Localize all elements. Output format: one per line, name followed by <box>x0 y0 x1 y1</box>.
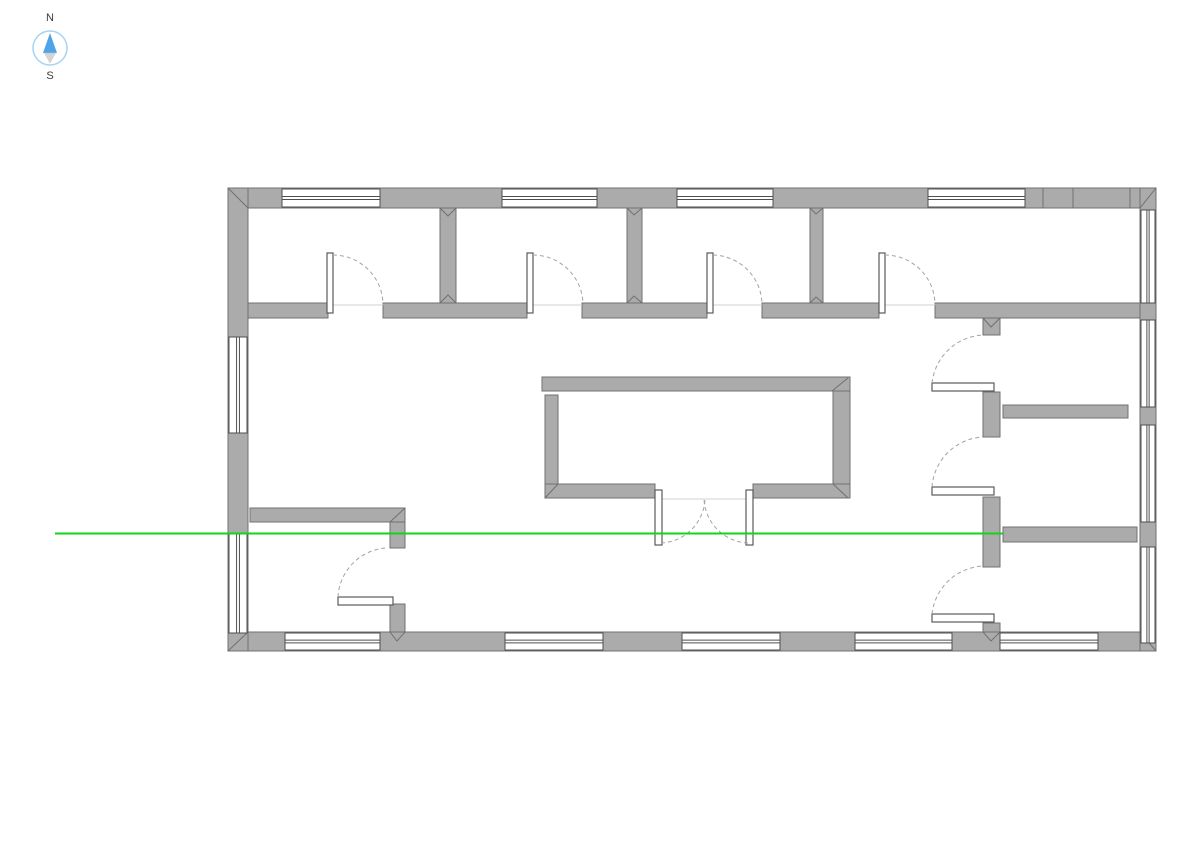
window-frame[interactable] <box>928 189 1025 207</box>
compass-north-needle-icon <box>43 33 57 53</box>
door-swing-arc <box>533 255 583 305</box>
compass-south-label: S <box>46 70 53 82</box>
door-leaf[interactable] <box>932 614 994 622</box>
door-swing-arc <box>932 437 983 487</box>
window[interactable] <box>502 189 597 207</box>
sw-room-wall-north[interactable] <box>250 508 405 522</box>
sw-room-wall-segment[interactable] <box>390 604 405 632</box>
window[interactable] <box>1141 547 1155 643</box>
window[interactable] <box>677 189 773 207</box>
corridor-wall-segment[interactable] <box>383 303 527 318</box>
orientation-compass[interactable]: N S <box>33 12 67 82</box>
door-swing-arc <box>885 255 935 305</box>
window-frame[interactable] <box>855 633 952 650</box>
east-hall-wall-segment[interactable] <box>983 623 1000 632</box>
window-frame[interactable] <box>502 189 597 207</box>
door-leaf[interactable] <box>338 597 393 605</box>
east-partition-wall[interactable] <box>1003 527 1137 542</box>
corridor-wall-segment[interactable] <box>935 303 1140 318</box>
room-divider-wall[interactable] <box>440 208 456 303</box>
corridor-wall-segment[interactable] <box>582 303 707 318</box>
door-leaf[interactable] <box>932 487 994 495</box>
window-frame[interactable] <box>1141 210 1155 303</box>
door-leaf[interactable] <box>932 383 994 391</box>
walls-layer <box>228 188 1156 651</box>
door-swing-arc <box>704 499 748 543</box>
window-frame[interactable] <box>1141 425 1155 522</box>
window-frame[interactable] <box>282 189 380 207</box>
corridor-wall-segment[interactable] <box>248 303 328 318</box>
window[interactable] <box>285 633 380 650</box>
core-wall-north[interactable] <box>542 377 850 391</box>
window[interactable] <box>229 533 247 633</box>
door-leaf[interactable] <box>746 490 753 545</box>
door-leaf[interactable] <box>707 253 713 313</box>
window[interactable] <box>928 189 1025 207</box>
drawing-canvas[interactable]: { "compass": { "north_label": "N", "sout… <box>0 0 1191 842</box>
door-leaf[interactable] <box>655 490 662 545</box>
window-frame[interactable] <box>1141 320 1155 407</box>
window[interactable] <box>282 189 380 207</box>
door-leaf[interactable] <box>327 253 333 313</box>
window-frame[interactable] <box>505 633 603 650</box>
window[interactable] <box>505 633 603 650</box>
door-swing-arc <box>713 255 762 305</box>
window[interactable] <box>1141 210 1155 303</box>
door-swing-arc <box>338 548 385 597</box>
door-swing-arc <box>333 255 383 305</box>
east-hall-wall-segment[interactable] <box>983 497 1000 567</box>
door-leaf[interactable] <box>527 253 533 313</box>
window-frame[interactable] <box>285 633 380 650</box>
window[interactable] <box>1141 320 1155 407</box>
window-frame[interactable] <box>229 337 247 433</box>
compass-north-label: N <box>46 12 54 24</box>
door-swing-arc <box>932 335 983 383</box>
window[interactable] <box>229 337 247 433</box>
window[interactable] <box>1141 425 1155 522</box>
compass-south-needle-icon <box>45 53 56 63</box>
room-divider-wall[interactable] <box>627 208 642 303</box>
east-hall-wall-segment[interactable] <box>983 392 1000 437</box>
core-wall-south-left[interactable] <box>545 484 655 498</box>
door-leaf[interactable] <box>879 253 885 313</box>
window-frame[interactable] <box>1000 633 1098 650</box>
core-wall-west[interactable] <box>545 395 558 498</box>
window[interactable] <box>855 633 952 650</box>
door-swing-arc <box>932 566 983 614</box>
wall-seams-layer <box>228 188 1156 651</box>
corridor-wall-segment[interactable] <box>762 303 879 318</box>
window-frame[interactable] <box>1141 547 1155 643</box>
window[interactable] <box>1000 633 1098 650</box>
windows-layer <box>229 189 1155 650</box>
window-frame[interactable] <box>677 189 773 207</box>
east-partition-wall[interactable] <box>1003 405 1128 418</box>
core-wall-east[interactable] <box>833 391 850 484</box>
sw-room-wall-segment[interactable] <box>390 522 405 548</box>
window-frame[interactable] <box>229 533 247 633</box>
window[interactable] <box>682 633 780 650</box>
floor-plan-drawing[interactable]: N S <box>0 0 1191 842</box>
window-frame[interactable] <box>682 633 780 650</box>
room-divider-wall[interactable] <box>810 208 823 303</box>
door-swing-arc <box>661 499 705 543</box>
